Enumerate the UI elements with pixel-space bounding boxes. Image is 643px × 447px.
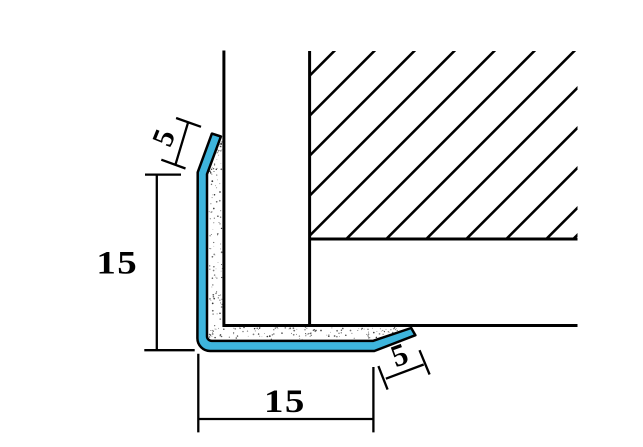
svg-text:15: 15 (264, 383, 306, 420)
svg-text:15: 15 (96, 244, 138, 281)
